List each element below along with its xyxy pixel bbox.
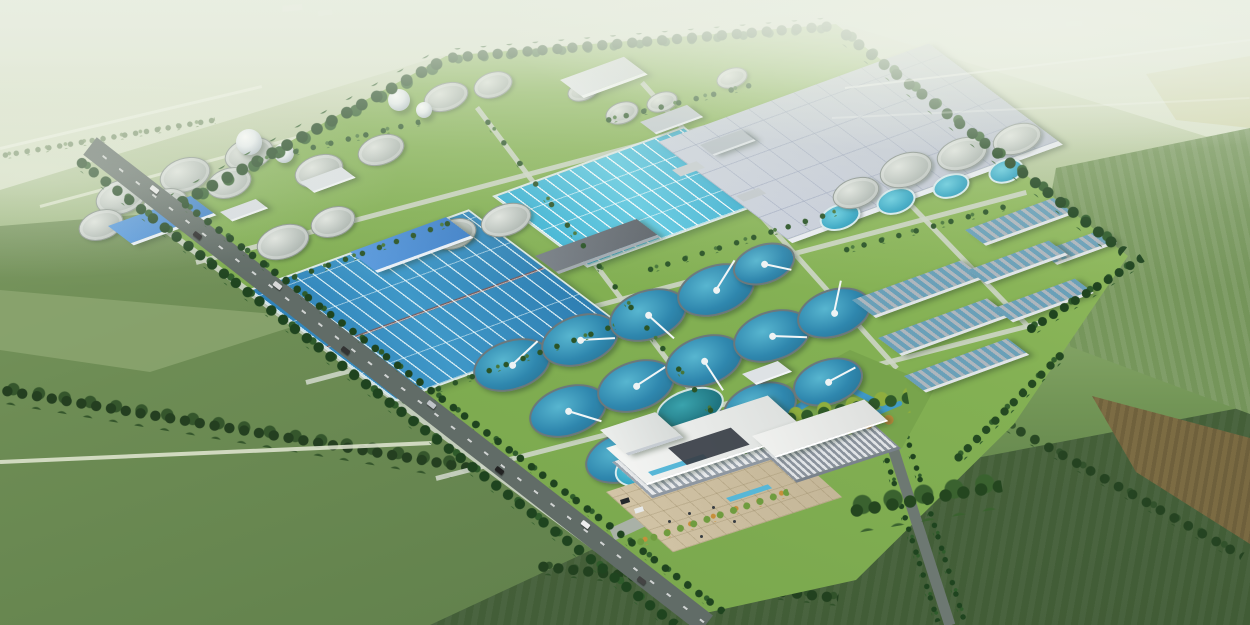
clarifier-bridge <box>635 366 665 387</box>
clarifier-hub <box>760 260 769 269</box>
pedestrian <box>733 520 736 523</box>
pedestrian <box>700 535 703 538</box>
clarifier-hub <box>564 407 573 416</box>
clarifier-bridge <box>828 366 857 382</box>
pedestrian <box>668 520 671 523</box>
clarifier-hub <box>768 332 777 341</box>
clarifier-bridge <box>568 410 602 422</box>
clarifier-bridge <box>772 335 807 338</box>
pedestrian <box>712 506 715 509</box>
aerial-render-stage <box>0 0 1250 625</box>
clarifier-bridge <box>715 260 735 291</box>
treatment-plant-scene <box>0 0 1250 625</box>
gas-sphere <box>416 102 432 118</box>
clarifier-hub <box>830 309 839 318</box>
pedestrian <box>688 512 691 515</box>
